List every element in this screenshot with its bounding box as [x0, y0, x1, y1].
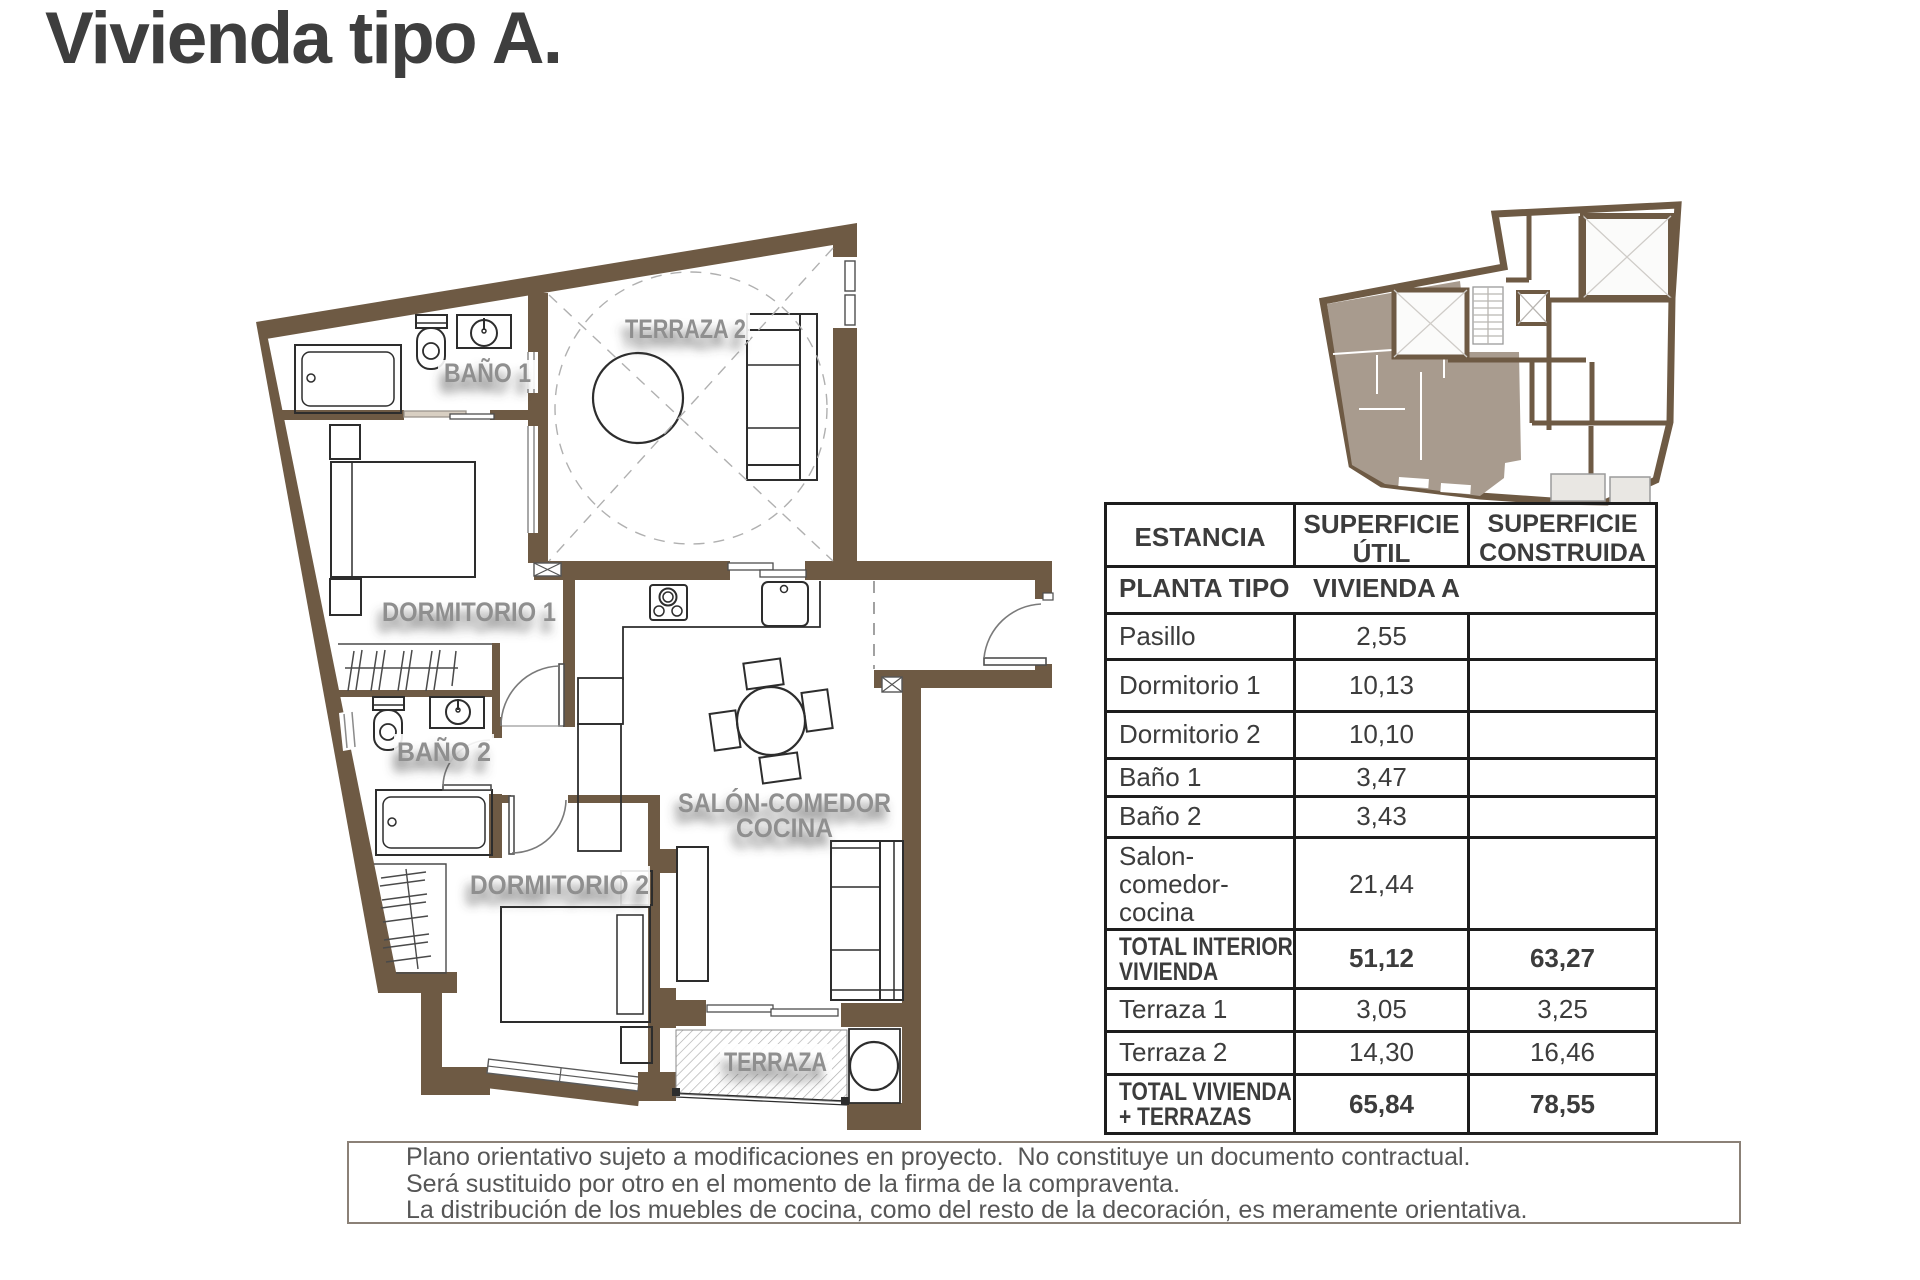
svg-text:COCINA: COCINA	[736, 813, 833, 843]
svg-text:TERRAZA 2: TERRAZA 2	[625, 314, 746, 344]
svg-text:DORMITORIO 1: DORMITORIO 1	[382, 597, 556, 627]
svg-text:BAÑO 2: BAÑO 2	[397, 736, 491, 767]
svg-text:BAÑO 1: BAÑO 1	[444, 357, 531, 388]
svg-text:TERRAZA: TERRAZA	[724, 1047, 827, 1077]
svg-text:DORMITORIO 2: DORMITORIO 2	[470, 870, 649, 900]
